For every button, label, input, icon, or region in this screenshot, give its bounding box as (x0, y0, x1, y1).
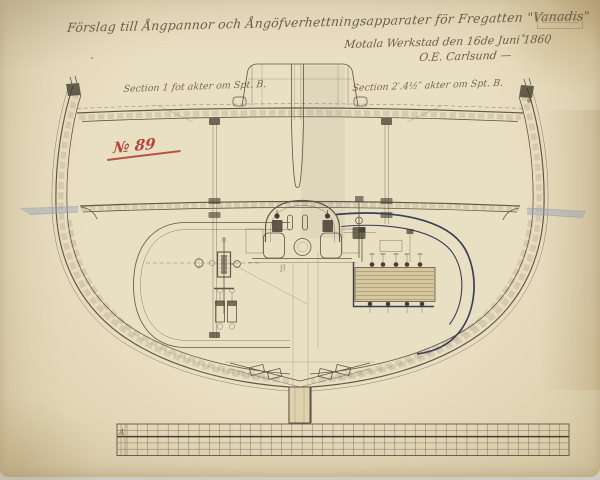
floors-keelson (225, 362, 375, 423)
lower-deck (80, 202, 520, 221)
grate-plan-grid (117, 424, 569, 456)
bulwark-caps (66, 76, 534, 98)
hull-outline (52, 85, 548, 423)
stay-bolts-bottom (368, 302, 425, 313)
ship-cross-section-drawing (0, 0, 600, 480)
upper-deck (77, 104, 523, 122)
scanned-drawing-page: Förslag till Ångpannor och Ångöfverhettn… (0, 0, 600, 480)
stay-bolts-top (370, 254, 423, 267)
deckhouse (233, 64, 367, 106)
archive-stamp (537, 14, 583, 29)
left-boiler-shell (134, 223, 291, 348)
